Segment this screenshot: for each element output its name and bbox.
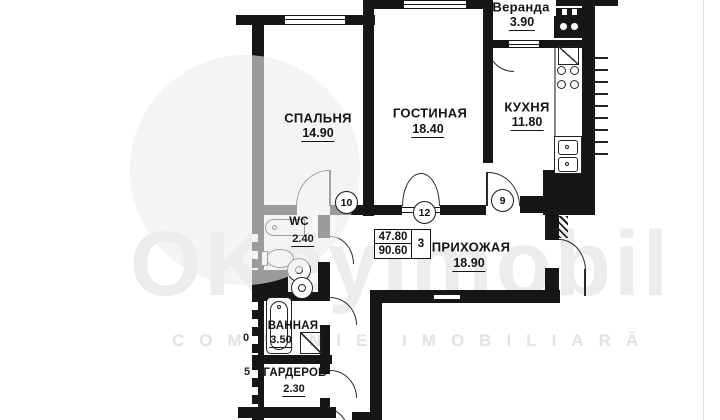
room-area-wardrobe: 2.30 — [282, 383, 305, 397]
room-label-veranda: Веранда — [492, 0, 549, 15]
watermark-disc — [130, 55, 360, 285]
door-number-bedroom: 10 — [335, 191, 358, 214]
stove-burner-1 — [559, 22, 568, 31]
room-area-bathroom: 3.50 — [269, 334, 292, 348]
wall-living-right — [483, 0, 493, 163]
room-area-living: 18.40 — [411, 122, 444, 138]
door-arc-wardrobe — [330, 370, 357, 398]
stove-burner-2 — [570, 22, 579, 31]
wall-wc-right-lower — [318, 262, 330, 292]
apartment-summary-box: 47.80 3 90.60 — [374, 229, 431, 259]
shower-icon — [300, 332, 322, 354]
wall-tick — [595, 105, 608, 107]
fridge-icon — [558, 46, 579, 65]
wall-kitchen-step — [520, 196, 545, 213]
wall-living-left — [363, 0, 374, 216]
room-label-kitchen: КУХНЯ — [504, 100, 549, 115]
room-area-kitchen: 11.80 — [511, 115, 544, 131]
cooktop-burner-4 — [570, 80, 579, 89]
wall-bottom — [238, 407, 336, 418]
door-number-living: 12 — [413, 201, 436, 224]
living-area-value: 47.80 — [375, 230, 412, 244]
bathtub-drain — [277, 305, 281, 309]
sink-drain-1 — [565, 145, 569, 149]
page-edge-line — [703, 0, 704, 420]
door-leaf-entry — [584, 269, 586, 296]
wall-tick — [595, 117, 608, 119]
cut-label-mid: 0 — [243, 332, 249, 344]
wall-tick — [595, 153, 608, 155]
door-number-kitchen-label: 9 — [500, 195, 506, 207]
window-veranda-sill — [509, 40, 539, 48]
cut-label-low: 5 — [244, 366, 250, 378]
wall-tick — [595, 129, 608, 131]
washer-drum-2 — [298, 284, 306, 292]
room-label-hallway: ПРИХОЖАЯ — [432, 240, 511, 255]
room-label-bathroom: ВАННАЯ — [268, 320, 318, 332]
wall-hall-top-b — [440, 205, 486, 215]
room-label-bedroom: СПАЛЬНЯ — [284, 111, 352, 126]
wall-kitchen-right — [582, 0, 595, 215]
wall-top-right-strip — [556, 0, 618, 6]
window-living — [404, 0, 466, 9]
door-arc-living-left — [402, 173, 421, 206]
wall-hall-top-a — [374, 205, 402, 215]
room-area-bedroom: 14.90 — [301, 126, 334, 142]
room-area-wc: 2.40 — [291, 233, 314, 247]
cooktop-burner-2 — [570, 66, 579, 75]
room-label-wc: WC — [289, 216, 309, 228]
room-label-living: ГОСТИНАЯ — [393, 106, 467, 121]
room-area-veranda: 3.90 — [509, 15, 535, 31]
wall-tick — [595, 93, 608, 95]
door-number-bedroom-label: 10 — [341, 197, 353, 209]
window-bedroom — [285, 15, 345, 25]
cooktop-burner-3 — [557, 80, 566, 89]
wall-kitchen-top-a — [493, 40, 509, 48]
wall-corridor-right — [370, 303, 382, 420]
total-area-value: 90.60 — [375, 244, 412, 258]
floor-plan-canvas: OKeyImobil COMPANIE IMOBILIARĂ — [0, 0, 720, 420]
veranda-railing-hatch — [556, 8, 582, 16]
door-number-kitchen: 9 — [491, 189, 514, 212]
room-area-hallway: 18.90 — [452, 256, 485, 272]
hall-bottom-vent — [434, 294, 460, 300]
door-number-living-label: 12 — [419, 207, 431, 219]
rooms-count-value: 3 — [412, 230, 430, 258]
wall-tick — [595, 141, 608, 143]
cooktop-burner-1 — [557, 66, 566, 75]
entry-wall-hatch — [559, 216, 568, 238]
wall-tick — [595, 69, 608, 71]
wall-entry-upper — [545, 215, 559, 240]
wall-tick — [595, 81, 608, 83]
wall-bath-bottom — [252, 355, 332, 364]
room-label-wardrobe: ГАРДЕРОБ — [263, 367, 326, 379]
wall-bottom-stub — [352, 412, 382, 420]
wall-bedroom-top-stub — [236, 15, 252, 25]
wall-tick — [595, 57, 608, 59]
wall-hall-bottom — [370, 290, 560, 303]
sink-drain-2 — [565, 162, 569, 166]
